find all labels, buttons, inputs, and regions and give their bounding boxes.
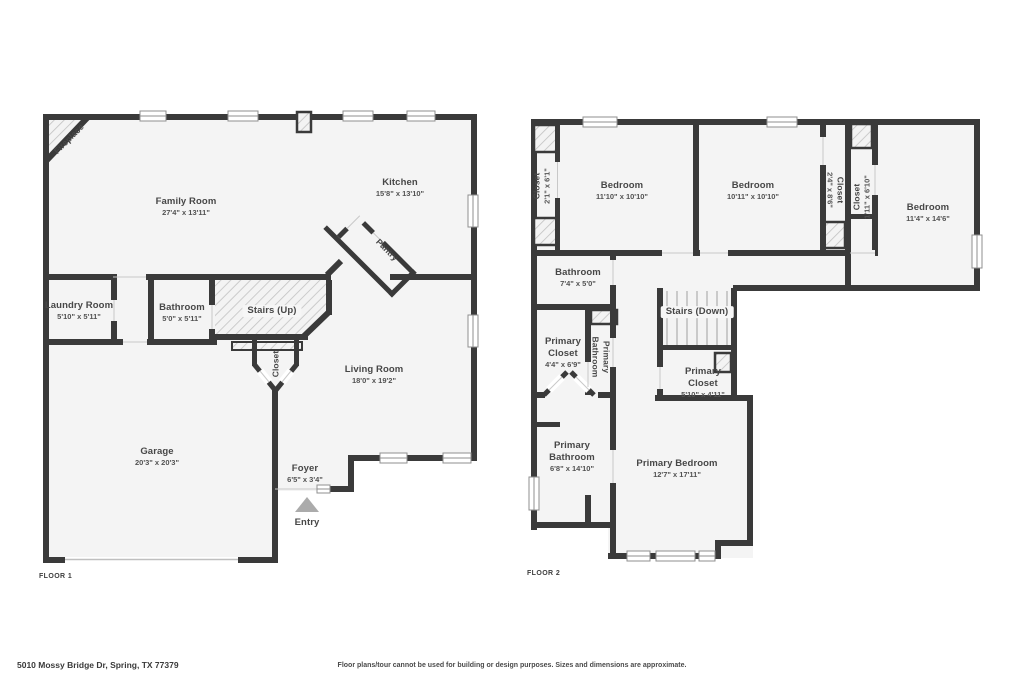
entry-arrow-icon — [295, 497, 319, 512]
room-label-living-room: Living Room18'0" x 19'2" — [345, 364, 404, 386]
room-label-bedroom-2: Bedroom10'11" x 10'10" — [727, 180, 779, 202]
room-label-bedroom-3: Bedroom11'4" x 14'6" — [906, 202, 950, 224]
room-label-primary-closet-2: Primary Closet5'10" x 4'11" — [674, 366, 732, 400]
room-label-foyer: Foyer6'5" x 3'4" — [287, 463, 323, 485]
room-label-primary-bathroom: Primary Bathroom6'8" x 14'10" — [543, 440, 601, 474]
floor-1-plan: Fireplace Family Room27'4" x 13'11" Kitc… — [36, 108, 486, 588]
property-address: 5010 Mossy Bridge Dr, Spring, TX 77379 — [17, 660, 179, 670]
room-label-closet-middle: Closet2'4" x 8'6" — [825, 172, 846, 208]
room-label-closet-left: Closet2'1" x 6'1" — [532, 168, 553, 204]
room-label-garage: Garage20'3" x 20'3" — [135, 446, 179, 468]
room-label-entry: Entry — [295, 517, 320, 529]
room-label-stairs-up: Stairs (Up) — [242, 305, 301, 317]
room-label-primary-closet-1: Primary Closet4'4" x 6'9" — [534, 336, 592, 370]
room-label-family-room: Family Room27'4" x 13'11" — [156, 196, 217, 218]
room-label-closet-right: Closet1'11" x 6'10" — [852, 175, 873, 219]
floor-2-plan: Closet2'1" x 6'1" Bedroom11'10" x 10'10"… — [525, 110, 990, 590]
disclaimer-text: Floor plans/tour cannot be used for buil… — [338, 662, 687, 669]
room-label-laundry-room: Laundry Room5'10" x 5'11" — [45, 300, 113, 322]
room-label-bathroom-2: Bathroom7'4" x 5'0" — [555, 267, 601, 289]
floor-1-caption: FLOOR 1 — [39, 573, 72, 580]
garage-door-opening — [65, 557, 238, 563]
room-label-primary-bathroom-wc: Primary Bathroom — [590, 330, 611, 384]
room-label-bathroom: Bathroom5'0" x 5'11" — [159, 302, 205, 324]
chimney-icon — [297, 112, 311, 132]
room-label-primary-bedroom: Primary Bedroom12'7" x 17'11" — [636, 458, 717, 480]
room-label-kitchen: Kitchen15'8" x 13'10" — [376, 177, 424, 199]
room-label-closet: Closet — [271, 351, 282, 378]
room-label-stairs-down: Stairs (Down) — [661, 306, 734, 318]
floor-plan-page: { "colors": { "wall": "#3a3a3a", "room_f… — [0, 0, 1024, 682]
room-label-bedroom-1: Bedroom11'10" x 10'10" — [596, 180, 648, 202]
floor-2-caption: FLOOR 2 — [527, 570, 560, 577]
floor2-lower-windows — [627, 551, 715, 561]
